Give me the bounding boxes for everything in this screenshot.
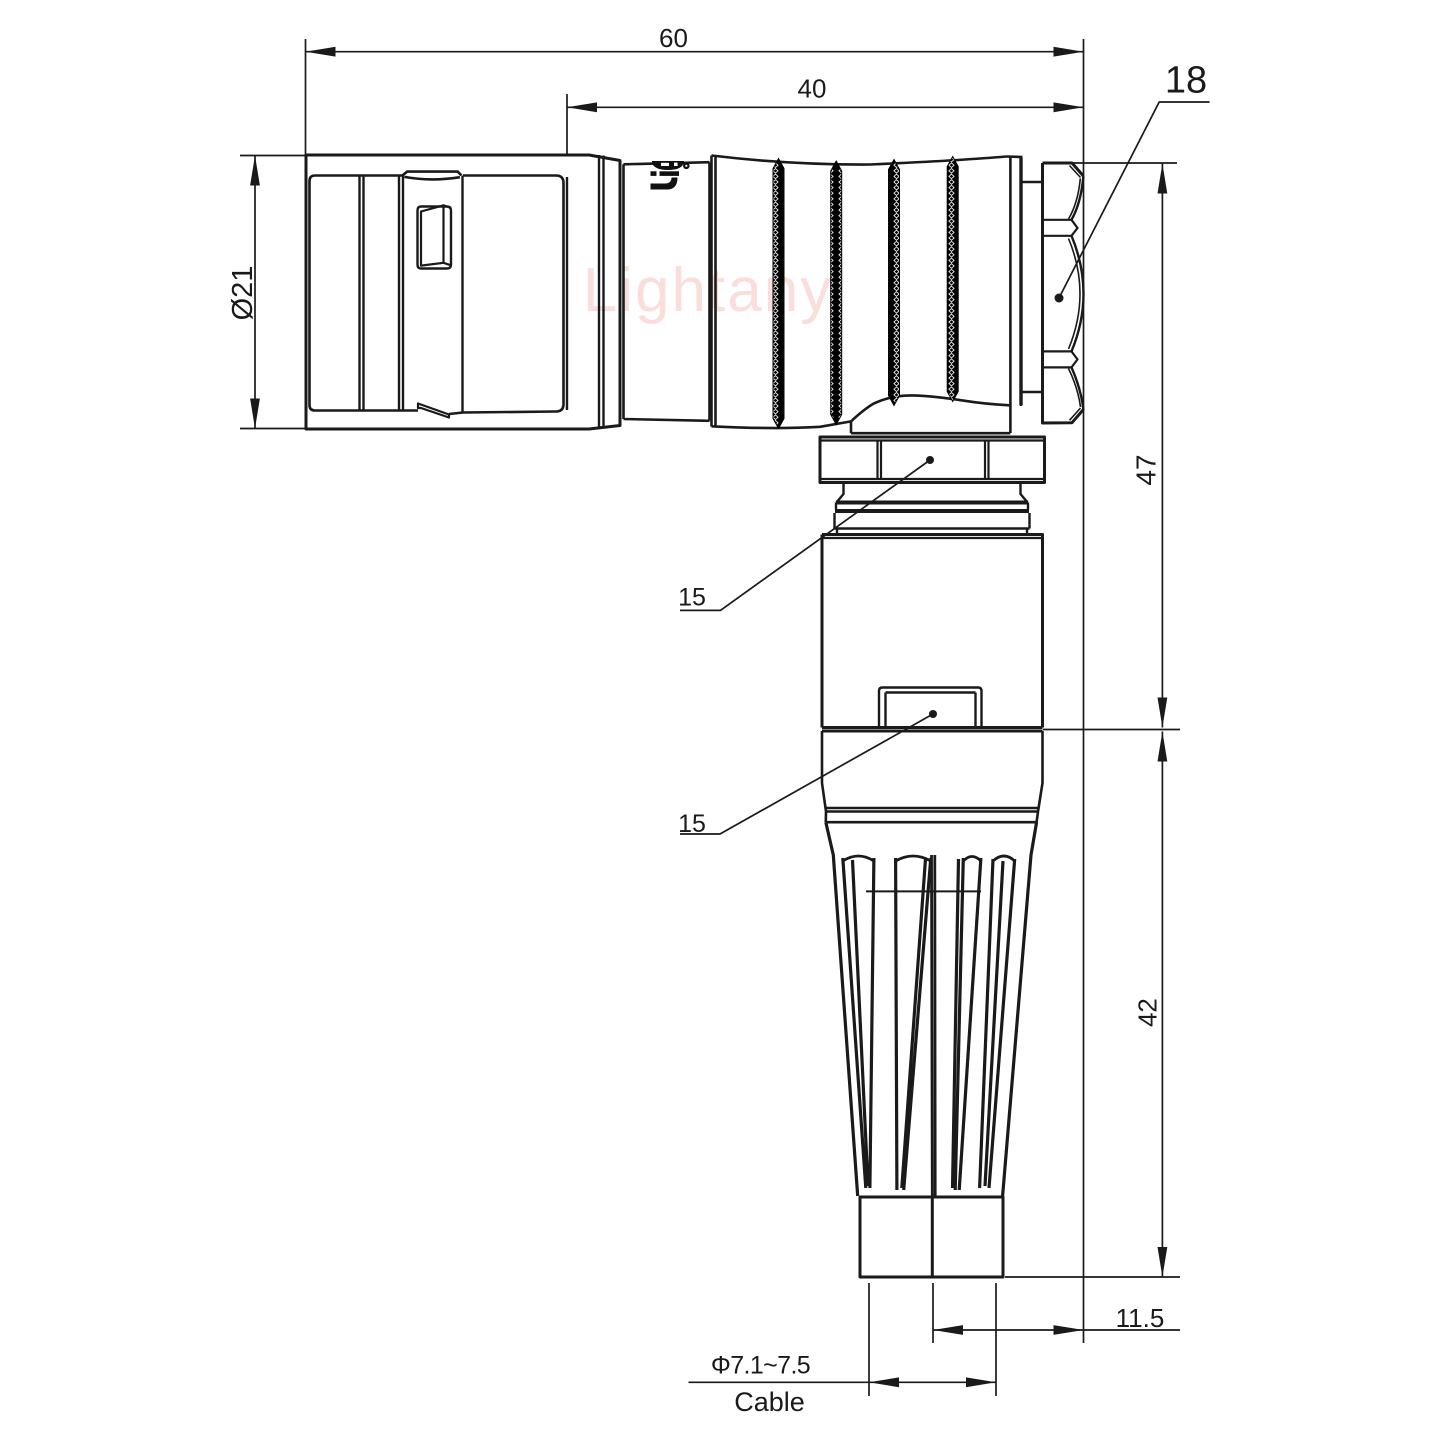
svg-text:18: 18 <box>1165 60 1207 102</box>
svg-text:11.5: 11.5 <box>1116 1303 1165 1333</box>
svg-text:15: 15 <box>678 583 706 611</box>
svg-text:Φ7.1~7.5: Φ7.1~7.5 <box>711 1351 810 1379</box>
svg-text:15: 15 <box>678 810 706 838</box>
svg-text:Ø21: Ø21 <box>227 266 259 321</box>
svg-text:40: 40 <box>798 74 827 104</box>
svg-text:60: 60 <box>659 23 688 53</box>
svg-text:42: 42 <box>1133 998 1163 1027</box>
svg-text:47: 47 <box>1131 454 1162 485</box>
svg-text:Cable: Cable <box>734 1387 805 1417</box>
